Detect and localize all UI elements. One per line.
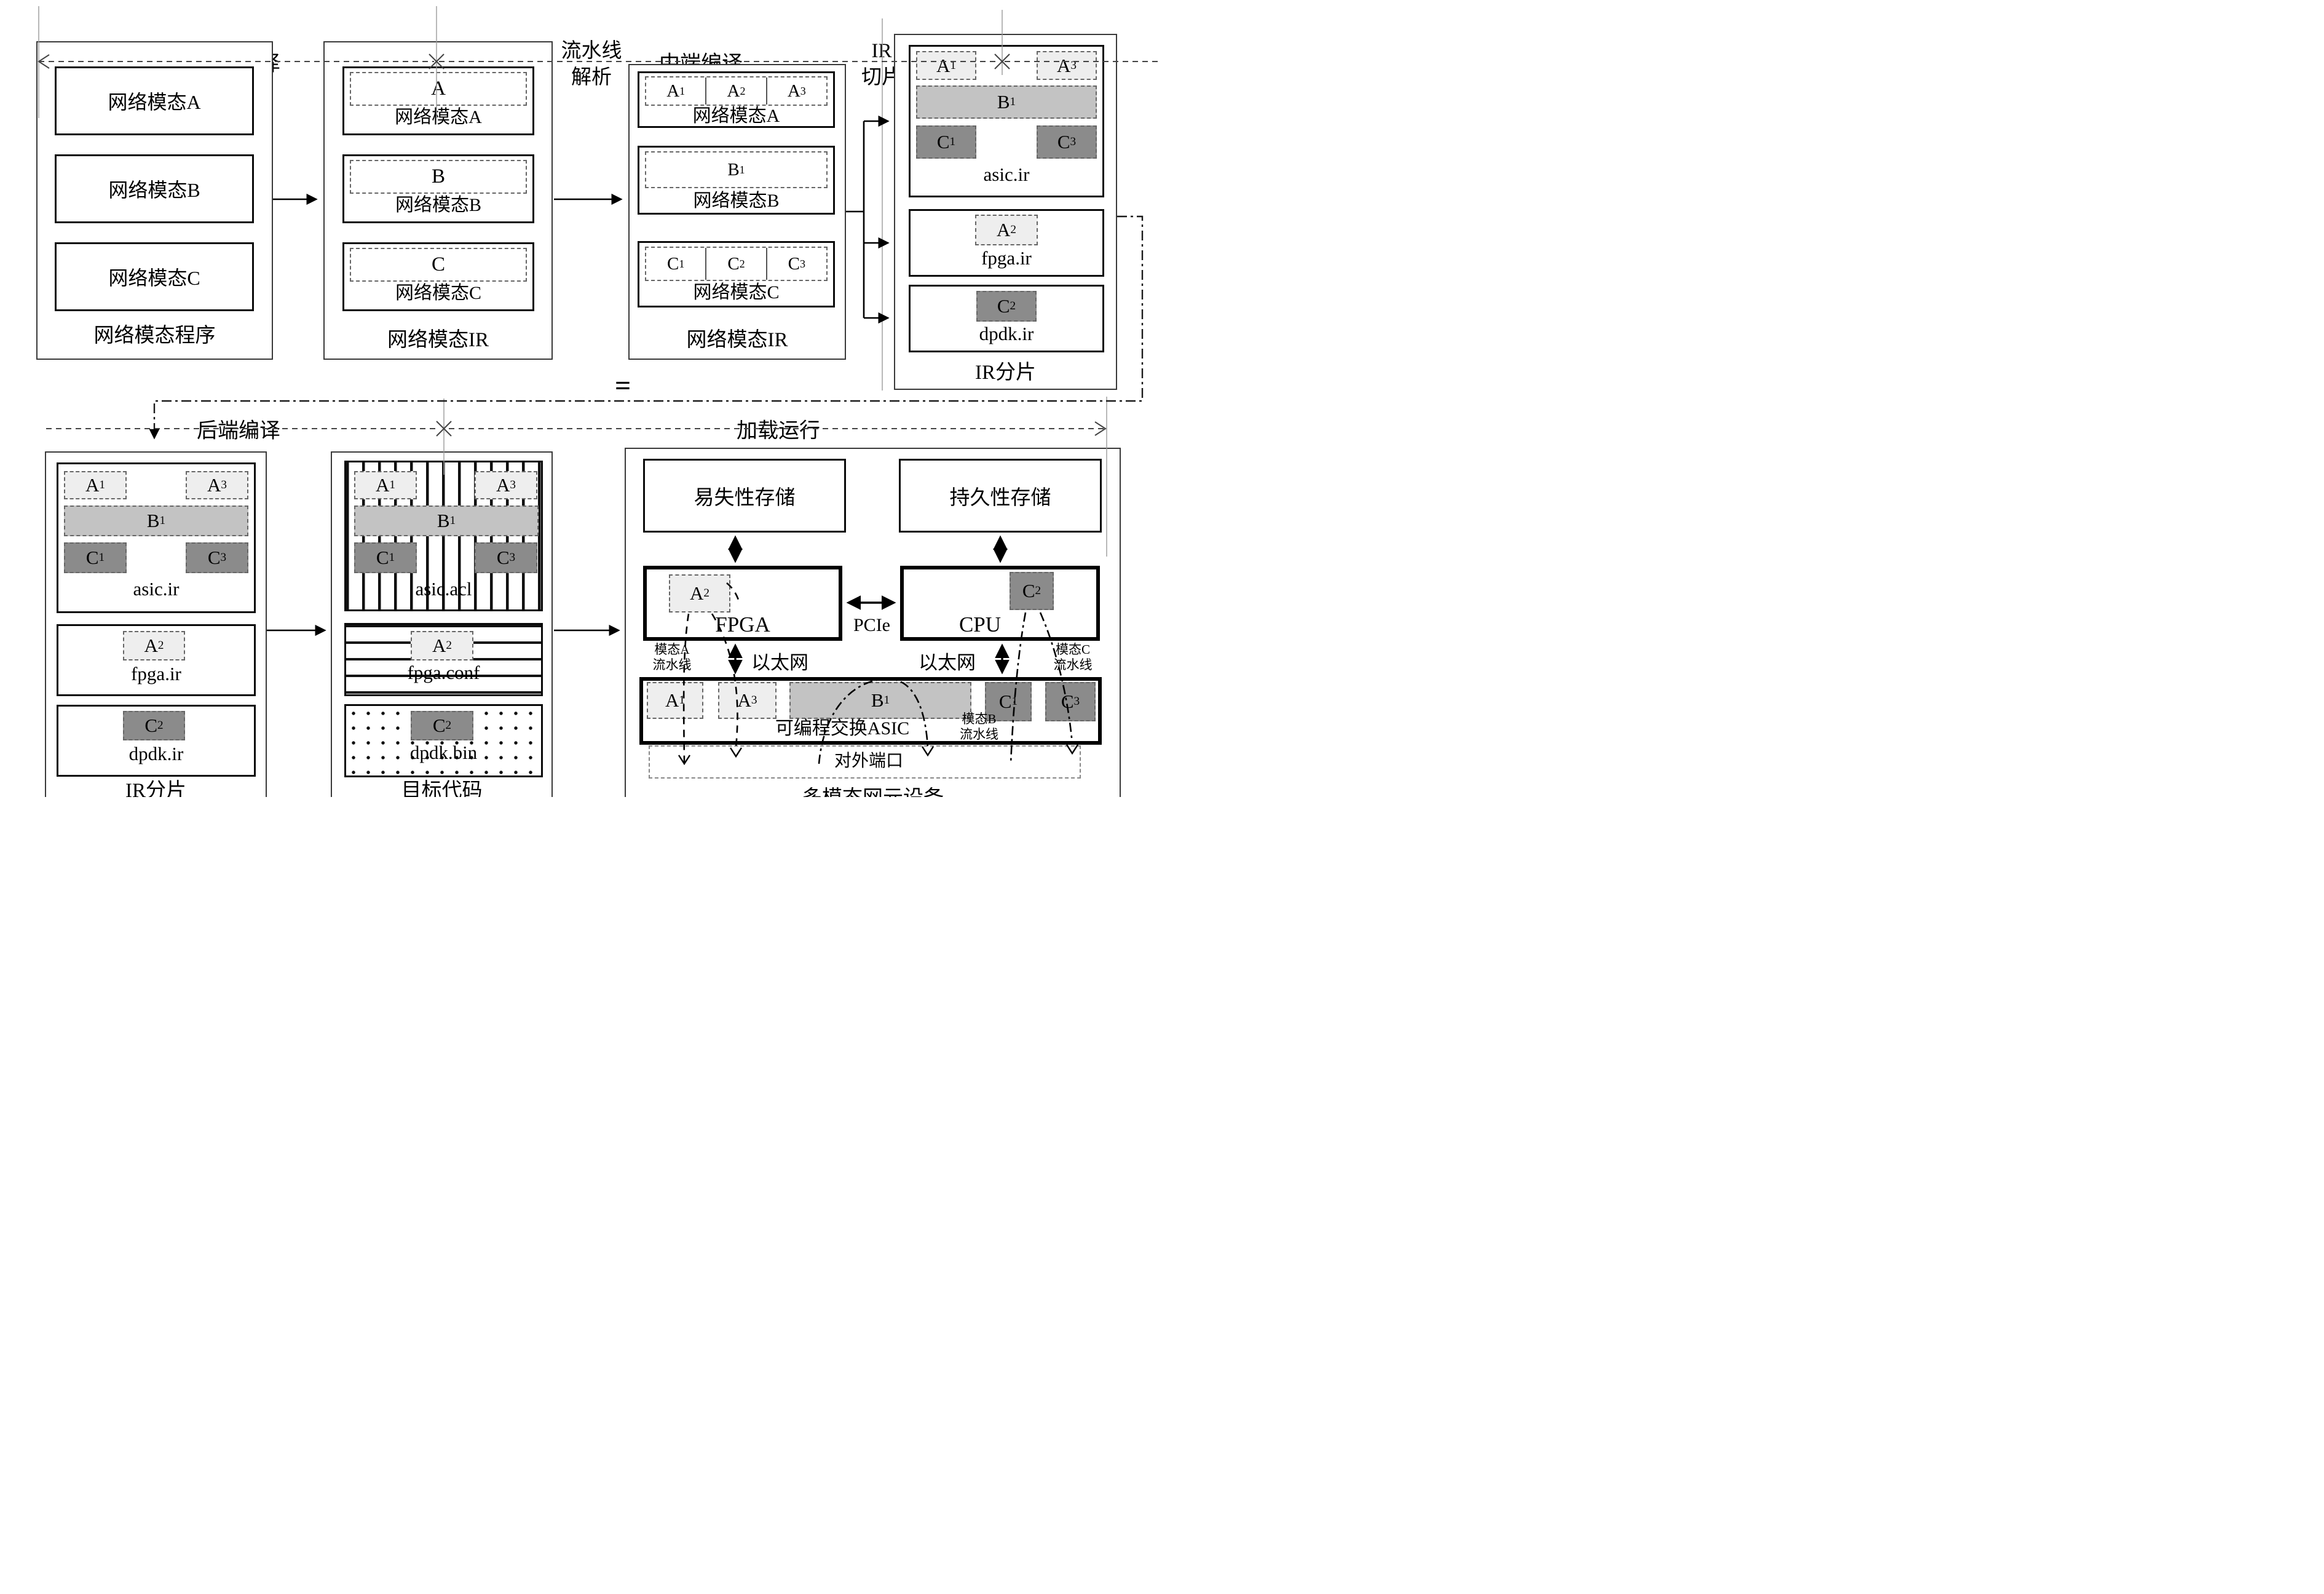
target-fpga-caption: fpga.conf — [344, 662, 543, 684]
chip-b1: B1 — [916, 85, 1097, 119]
chip-c2: C2 — [123, 711, 185, 740]
phase-loadrun-label: 加载运行 — [730, 414, 826, 444]
equals-sign: = — [615, 369, 631, 402]
ir-box-caption: 网络模态IR — [323, 329, 553, 352]
program-item-b: 网络模态B — [55, 154, 254, 223]
ir-sub-b-caption: 网络模态B — [342, 195, 534, 216]
chip-a3: A3 — [475, 471, 537, 499]
target-box-caption: 目标代码 — [331, 780, 553, 797]
chip-a3: A3 — [1037, 51, 1097, 80]
chip-a2: A2 — [669, 574, 730, 613]
pipeline-b-label: 模态B 流水线 — [947, 712, 1011, 742]
shard-fpga-caption: fpga.ir — [909, 247, 1104, 269]
pipeline-parse-label: 流水线 解析 — [552, 38, 631, 91]
chip-a2: A2 — [123, 631, 185, 660]
chip-a3: A3 — [186, 471, 248, 499]
ir-strip-c: C — [350, 248, 527, 282]
device-box-caption: 多模态网元设备 — [625, 787, 1121, 797]
pipe-sub-b-caption: 网络模态B — [638, 191, 835, 212]
pipe-sub-a-caption: 网络模态A — [638, 106, 835, 127]
shard-asic-caption: asic.ir — [909, 164, 1104, 186]
chip-a2: A2 — [975, 215, 1038, 245]
chip-c3: C3 — [475, 542, 537, 573]
device-ethernet-right-label: 以太网 — [919, 647, 976, 675]
chip-a2: A2 — [411, 631, 473, 660]
device-asic-label: 可编程交换ASIC — [701, 718, 984, 740]
chip-c2: C2 — [1010, 572, 1054, 610]
chip-c3: C3 — [1037, 125, 1097, 159]
device-pcie-label: PCIe — [841, 615, 903, 636]
chip-a1: A1 — [354, 471, 417, 499]
device-ports-label: 对外端口 — [798, 751, 939, 771]
chip-a3: A3 — [718, 682, 777, 719]
program-item-a: 网络模态A — [55, 66, 254, 135]
pipeline-c-label: 模态C 流水线 — [1040, 642, 1105, 673]
device-fpga-label: FPGA — [643, 613, 842, 637]
shard2-fpga-caption: fpga.ir — [57, 663, 256, 685]
device-cpu-label: CPU — [900, 613, 1060, 637]
pipe-box-caption: 网络模态IR — [628, 329, 846, 352]
device-volatile-storage: 易失性存储 — [643, 459, 846, 533]
device-persistent-storage: 持久性存储 — [899, 459, 1102, 533]
chip-b1: B1 — [354, 506, 539, 536]
chip-c2: C2 — [411, 711, 473, 740]
chip-a1: A1 — [916, 51, 976, 80]
chip-c3: C3 — [186, 542, 248, 573]
shard2-dpdk-caption: dpdk.ir — [57, 743, 256, 765]
target-asic-caption: asic.acl — [344, 578, 543, 600]
chip-a1: A1 — [64, 471, 127, 499]
ir-sub-a-caption: 网络模态A — [342, 107, 534, 129]
chip-c1: C1 — [354, 542, 417, 573]
ir-strip-b: B — [350, 160, 527, 194]
ir-strip-a: A — [350, 72, 527, 106]
pipeline-a-label: 模态A 流水线 — [639, 642, 705, 673]
pipe-sub-c-caption: 网络模态C — [638, 282, 835, 304]
shard-box-top-caption: IR分片 — [894, 362, 1117, 385]
pipe-strip-c: C1 C2 C3 — [645, 247, 828, 281]
chip-b1: B1 — [64, 506, 248, 536]
shard-box-bottom-caption: IR分片 — [45, 780, 267, 797]
target-dpdk-caption: dpdk.bin — [344, 742, 543, 764]
shard2-asic-caption: asic.ir — [57, 578, 256, 600]
chip-b1: B1 — [789, 682, 971, 719]
phase-backend-label: 后端编译 — [191, 414, 287, 444]
program-box-caption: 网络模态程序 — [36, 325, 273, 348]
device-ethernet-left-label: 以太网 — [751, 647, 808, 675]
ir-sub-c-caption: 网络模态C — [342, 283, 534, 304]
diagram-canvas: 前端编译 中端编译 后端编译 加载运行 流水线 解析 IR 切片 = 网络模态A… — [0, 0, 1162, 797]
program-item-c: 网络模态C — [55, 242, 254, 311]
chip-c1: C1 — [916, 125, 976, 159]
shard-dpdk-caption: dpdk.ir — [909, 323, 1104, 345]
chip-c1: C1 — [64, 542, 127, 573]
chip-a1: A1 — [647, 682, 703, 719]
chip-c3: C3 — [1045, 682, 1096, 721]
chip-c2: C2 — [976, 291, 1037, 322]
pipe-strip-b: B1 — [645, 151, 828, 188]
pipe-strip-a: A1 A2 A3 — [645, 76, 828, 106]
